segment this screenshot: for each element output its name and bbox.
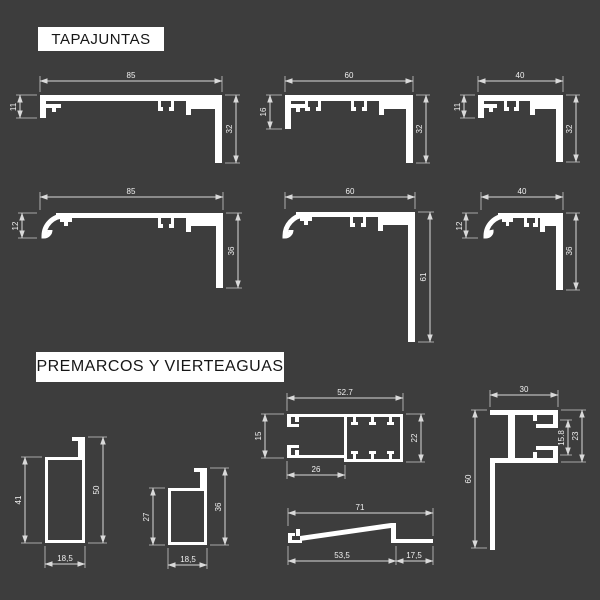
profile-top-hook: [194, 468, 207, 488]
profile-arm: [530, 101, 556, 115]
section-label-tapajuntas: TAPAJUNTAS: [38, 27, 164, 51]
dim-width-label: 40: [518, 187, 527, 196]
dim-left-label: 41: [14, 495, 23, 504]
catalog-page: 85 11 32 60 16 32: [0, 0, 600, 600]
dim-right-label: 50: [92, 485, 101, 494]
dim-width-label: 85: [127, 71, 136, 80]
profile-left-tab: [60, 218, 72, 226]
section-title: TAPAJUNTAS: [51, 31, 150, 48]
profile-tube: [45, 457, 85, 543]
profile-arm: [379, 101, 406, 115]
dim-left-label: 11: [453, 102, 462, 111]
profile-arm: [186, 218, 216, 232]
dim-leg-label: 36: [565, 246, 574, 255]
profiles-drawing: 85 11 32 60 16 32: [0, 0, 600, 600]
dim-right-label: 22: [410, 433, 419, 442]
dim-top-label: 71: [356, 503, 365, 512]
profile-left-tab: [502, 218, 513, 226]
profile-left-tab: [484, 104, 497, 112]
section-title: PREMARCOS Y VIERTEAGUAS: [36, 358, 283, 376]
section-label-premarcos: PREMARCOS Y VIERTEAGUAS: [36, 352, 284, 382]
dim-leg-label: 32: [565, 124, 574, 133]
dim-bottom-label: 18,5: [180, 555, 196, 564]
extension-lines: [149, 468, 229, 569]
profile-premarco-36: 27 36 18,5: [142, 468, 229, 569]
dim-bottom-label: 26: [312, 465, 321, 474]
dim-leg-label: 32: [225, 124, 234, 133]
profile-left-tab: [300, 217, 312, 225]
profile-vierteaguas: 71 53,5 17,5: [288, 503, 433, 565]
dim-leg-label: 61: [419, 272, 428, 281]
profile-premarco-angle: 30 60 15.8 23: [464, 385, 586, 550]
profile-walls: [287, 414, 403, 462]
dim-width-label: 85: [127, 187, 136, 196]
profile-top-hook: [72, 437, 85, 457]
profile-teeth: [351, 417, 394, 459]
profile-tapajuntas-curved-60: 60 61: [285, 187, 434, 342]
dim-left-label: 12: [11, 221, 20, 230]
profile-clip: [524, 218, 538, 227]
profile-clip: [351, 101, 367, 111]
profile-clip: [158, 218, 174, 228]
extension-lines: [18, 192, 242, 288]
dim-left-label: 27: [142, 512, 151, 521]
profile-outline: [296, 212, 415, 342]
profile-clip: [158, 101, 174, 111]
dim-right-label: 36: [214, 502, 223, 511]
extension-lines: [16, 76, 240, 163]
dim-left-label: 16: [259, 107, 268, 116]
dim-left-label: 12: [455, 221, 464, 230]
extension-lines: [21, 437, 107, 568]
dim-width-label: 40: [516, 71, 525, 80]
dim-top-label: 30: [520, 385, 529, 394]
dim-left-label: 11: [9, 102, 18, 111]
profile-bottom-clamp: [533, 446, 558, 458]
dim-left-label: 15: [254, 431, 263, 440]
profile-tapajuntas-flat-85: 85 11 32: [9, 71, 240, 163]
profile-clip: [504, 101, 519, 111]
profile-arm: [186, 101, 215, 115]
profile-step-tail: [391, 523, 433, 543]
dim-top-label: 52.7: [337, 388, 353, 397]
dim-bottom-right-label: 17,5: [406, 551, 422, 560]
dim-bottom-left-label: 53,5: [334, 551, 350, 560]
dim-bottom-label: 18,5: [57, 554, 73, 563]
profile-arm: [378, 217, 408, 231]
dim-right-inner-label: 15.8: [557, 430, 566, 446]
profile-premarco-box: 52.7 15 22 26: [254, 388, 425, 479]
profile-tapajuntas-curved-40: 40 12 36: [455, 187, 580, 290]
profile-clip: [350, 217, 366, 227]
dim-right-outer-label: 23: [571, 431, 580, 440]
profile-tapajuntas-curved-85: 85 12 36: [11, 187, 242, 288]
dim-left-label: 60: [464, 474, 473, 483]
profile-body: [490, 410, 558, 550]
profile-left-tab: [291, 104, 305, 112]
profile-top-clamp: [533, 415, 558, 428]
dim-width-label: 60: [346, 187, 355, 196]
profile-tapajuntas-flat-40: 40 11 32: [453, 71, 580, 162]
profile-left-hook: [288, 529, 302, 543]
profile-clip: [305, 101, 321, 111]
profile-arm: [540, 218, 556, 232]
dim-leg-label: 32: [415, 124, 424, 133]
profile-tapajuntas-flat-60: 60 16 32: [259, 71, 430, 163]
profile-sloped-plate: [300, 523, 391, 541]
dim-leg-label: 36: [227, 246, 236, 255]
profile-left-tab: [46, 104, 61, 112]
dim-width-label: 60: [345, 71, 354, 80]
profile-tube: [168, 488, 207, 545]
profile-premarco-50: 41 50 18,5: [14, 437, 107, 568]
